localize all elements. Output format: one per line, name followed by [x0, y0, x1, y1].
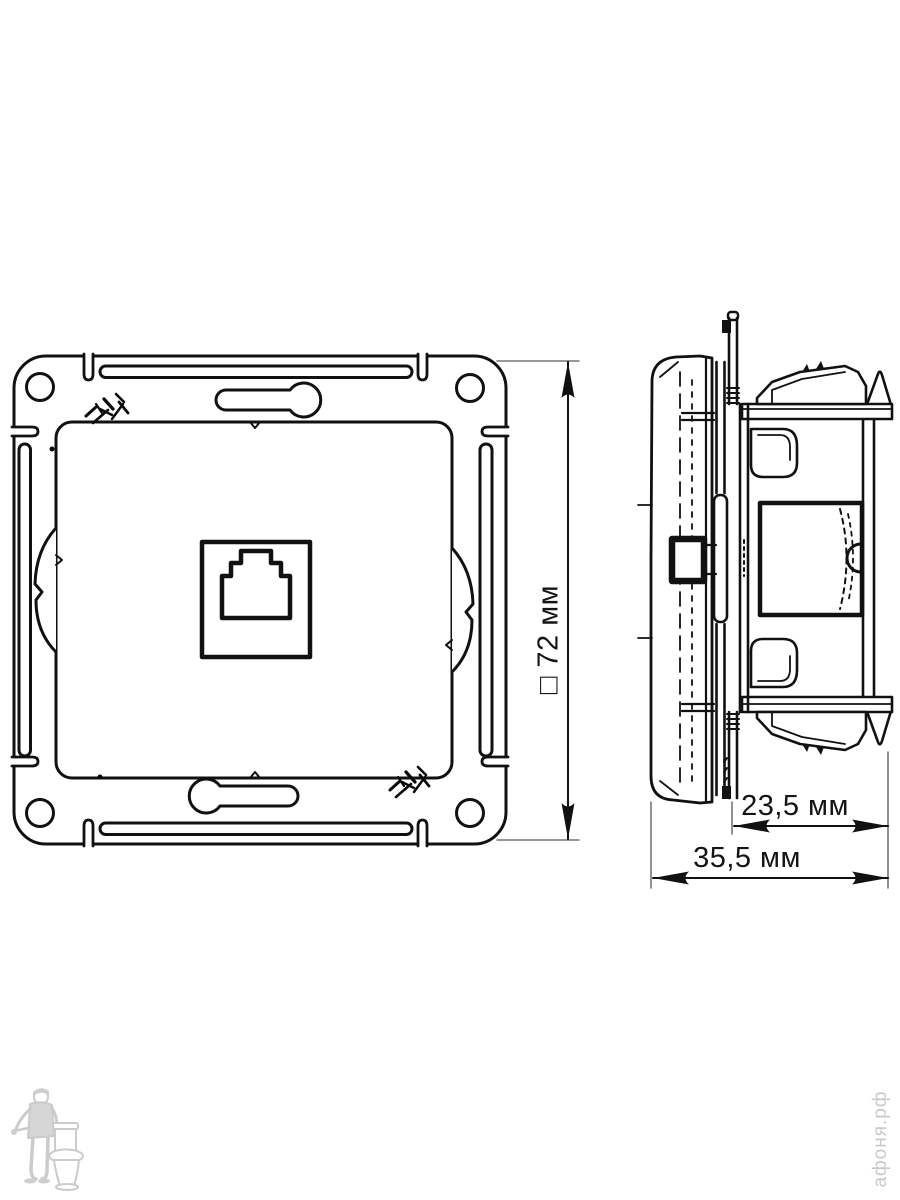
rj-socket-opening: [222, 551, 290, 618]
screw-hole-bottom-right: [457, 800, 484, 827]
toilet-sketch: [49, 1123, 83, 1190]
screw-hole-top-right: [457, 375, 484, 402]
claw-boot-top: [751, 429, 797, 477]
watermark-plumber-logo: [11, 1088, 83, 1190]
screw-hole-bottom-left: [27, 800, 54, 827]
flange-top: [742, 404, 892, 419]
rear-rail: [863, 404, 874, 712]
burr-speck-bottom: [98, 775, 103, 780]
screw-hole-top-left: [27, 374, 54, 401]
burr-speck-left: [50, 447, 55, 452]
claw-arm-top: [757, 361, 866, 404]
dimension-label-23-5mm: 23,5 мм: [725, 790, 865, 823]
side-view-section: [638, 312, 892, 803]
watermark-site-text: афоня.рф: [870, 1084, 892, 1194]
dimension-label-72mm: □ 72 мм: [533, 560, 566, 720]
technical-drawing-page: □ 72 мм 23,5 мм 35,5 мм афоня.рф: [0, 0, 900, 1200]
dimension-label-35-5mm: 35,5 мм: [677, 842, 817, 875]
front-view-mounting-plate: [12, 354, 508, 846]
claw-arm-bottom: [757, 712, 866, 755]
claw-boot-bottom: [751, 639, 797, 687]
drawing-canvas: [0, 0, 900, 1200]
mechanism-wall: [740, 404, 748, 712]
mechanism-box: [760, 503, 862, 615]
mounting-frame-bar: [714, 362, 727, 795]
